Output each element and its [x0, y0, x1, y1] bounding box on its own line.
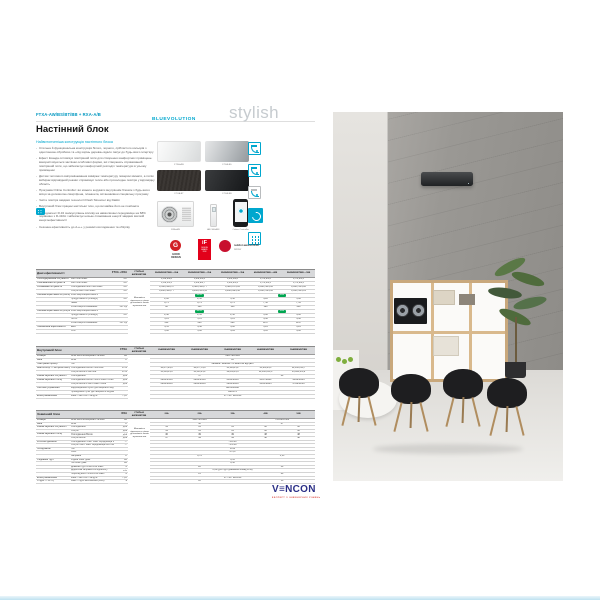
feature-bullet: Ефект Коанда оптимізує повітряний потік …: [36, 157, 155, 173]
spec-s-cell: COP: [70, 330, 114, 334]
vencon-tagline: ЕКСПЕРТ З ІНЖЕНЕРНИХ РІШЕНЬ: [272, 497, 321, 499]
model-header-cell: 35A: [216, 411, 249, 419]
spec-table: Дані ефективностіFTXA + RXAСТИЛЬНІ AW/BS…: [36, 269, 315, 334]
if-award-sublabel: DESIGN AWARD 2018: [198, 247, 211, 253]
table-midnote: Можливість підключення тільки до зовнішн…: [129, 297, 150, 307]
spec-value-cell: 4,00: [282, 330, 315, 334]
product-tile: FTXA-BT: [157, 170, 201, 195]
reddot-award-winner-label: winner: [234, 248, 241, 251]
floor-shadow: [373, 444, 523, 454]
feature-list: Стильна й функціональна конструкція біло…: [36, 147, 155, 232]
spec-value-cell: 10: [150, 480, 249, 484]
model-code: FTXA-AW/BS/BT/BB + RXA-A/B: [36, 112, 101, 117]
phone-product-image: [233, 199, 248, 227]
chair: [337, 368, 383, 430]
spec-l-cell: [36, 330, 70, 334]
section-title-cell: Внутрішній блокFTXA: [36, 347, 128, 355]
remote-product-image: [210, 204, 217, 227]
green-fruit: [342, 359, 347, 364]
model-header-cell: 25AW/BS/BT/BB: [183, 347, 216, 355]
series-header-cell: СТИЛЬНІ AW/BS/BT/BB: [128, 347, 150, 355]
chair: [441, 369, 487, 431]
series-header-cell: СТИЛЬНІ AW/BS/BT/BB: [128, 411, 150, 419]
series-header-cell: СТИЛЬНІ AW/BS/BT/BB: [128, 270, 150, 278]
spec-s-cell: Макс. струм запобіжника (MFA): [70, 480, 114, 484]
spec-m-cell: [128, 480, 150, 484]
feature-bullet: Сезонна ефективність до А+++ у режимі ох…: [36, 226, 155, 230]
product-caption: RXA-A/B: [157, 229, 194, 231]
spec-row: ЕлектроживленняФаза / Частота / НапругаГ…: [36, 395, 315, 399]
blackwood-product-image: [157, 170, 201, 191]
green-fruit: [336, 357, 341, 362]
model-header-cell: 50AW/BS/BT/BB: [282, 347, 315, 355]
product-tile: Online Controller: [233, 199, 249, 231]
spec-section: Дані ефективностіFTXA + RXAСТИЛЬНІ AW/BS…: [36, 269, 315, 334]
feature-bullet: Програма Online Controller: ви можете ке…: [36, 189, 155, 197]
product-caption: ARC466A58: [207, 229, 219, 231]
interior-photo: [333, 112, 563, 481]
spec-value-cell: 5,00: [150, 330, 183, 334]
good-design-award-label: GOOD DESIGN: [163, 253, 189, 259]
spec-value-cell: 5,00: [183, 330, 216, 334]
spec-u-cell: А: [114, 480, 128, 484]
spec-row: COP5,005,004,044,124,00: [36, 330, 315, 334]
model-header-cell: 35AW/BS/BT/BB + 35A: [216, 270, 249, 278]
chair: [485, 378, 531, 440]
good-design-award-icon: G: [170, 240, 181, 251]
feature-bullet: Чисте повітря завдяки технології Flash S…: [36, 199, 155, 203]
unit-dimensions-icon: [248, 186, 261, 199]
spec-m-cell: [128, 395, 150, 399]
model-header-cell: 35AW/BS/BT/BB: [216, 347, 249, 355]
stylish-wordmark: stylish: [229, 103, 279, 123]
outdoor-product-image: [157, 201, 194, 227]
spec-s-cell: Фаза / Частота / Напруга: [70, 395, 114, 399]
spec-l-cell: Струм — 50 Гц: [36, 480, 70, 484]
spec-value-cell: 1~ / 50 / 220-240: [150, 395, 315, 399]
section-title-cell: Зовнішній блокRXA: [36, 411, 128, 419]
model-header-cell: 42AW/BS/BT/BB: [249, 347, 282, 355]
silver-product-image: [205, 141, 249, 162]
green-fruit: [348, 357, 353, 362]
model-header-cell: 25AW/BS/BT/BB + 25A: [183, 270, 216, 278]
table-midnote: Можливість підключення тільки до зовнішн…: [129, 428, 150, 438]
model-header-cell: 42B: [249, 411, 282, 419]
online-controller-app-icon: [36, 208, 45, 215]
section-title-cell: Дані ефективностіFTXA + RXA: [36, 270, 128, 278]
feature-bullet: Датчик теплового випромінювання вимірює …: [36, 175, 155, 187]
page-title: Настінний блок: [36, 124, 109, 135]
model-header-cell: 50B: [282, 411, 315, 419]
spec-m-cell: [128, 330, 150, 334]
room-sensor-icon: [248, 164, 261, 177]
product-caption: FTXA-BB: [205, 193, 249, 195]
energy-class-badge: А+++: [195, 294, 205, 297]
boombox-speaker: [394, 298, 427, 324]
storage-box: [433, 290, 455, 305]
spec-value-cell: 4,12: [249, 330, 282, 334]
product-tile: FTXA-AW: [157, 141, 201, 166]
spec-u-cell: [114, 330, 128, 334]
product-row-accessories: RXA-A/BARC466A58Online Controller: [157, 199, 249, 231]
spec-value-cell: 16: [249, 480, 315, 484]
bluevolution-logo: BLUEVOLUTION: [152, 117, 196, 122]
vencon-logo: V≡NCON: [272, 484, 316, 495]
feature-icon-column: [248, 142, 262, 254]
product-caption: FTXA-AW: [157, 164, 201, 166]
energy-class-badge: А++: [278, 294, 287, 297]
model-header-cell: 20AW/BS/BT/BB: [150, 347, 183, 355]
coanda-swirl-icon: [248, 208, 263, 223]
energy-class-badge: А++: [278, 310, 287, 313]
feature-bullet: Холодоагент R-32 знижує рівень впливу на…: [36, 212, 155, 224]
feature-bullet: Стильна й функціональна конструкція біло…: [36, 147, 155, 155]
product-tile: FTXA-BS: [205, 141, 249, 166]
wall-mounted-ac-unit: [421, 172, 473, 186]
product-caption: Online Controller: [233, 229, 249, 231]
model-header-cell: 20A: [150, 411, 183, 419]
if-award-logo: iF: [198, 239, 211, 247]
product-caption: FTXA-BT: [157, 193, 201, 195]
energy-class-badge: А+++: [195, 310, 205, 313]
if-design-award-icon: iF DESIGN AWARD 2018: [198, 239, 211, 260]
black-product-image: [205, 170, 249, 191]
white-product-image: [157, 141, 201, 162]
spec-table: Внутрішній блокFTXAСТИЛЬНІ AW/BS/BT/BB20…: [36, 346, 315, 399]
product-caption: FTXA-BS: [205, 164, 249, 166]
model-header-cell: 42AW/BS/BT/BB + 42B: [249, 270, 282, 278]
reddot-award-label: reddot award 2018: [234, 243, 259, 247]
reddot-award-icon: [219, 240, 231, 252]
model-header-cell: 20AW/BS/BT/BB + 20A: [150, 270, 183, 278]
page-subtitle: Найвитонченіша конструкція настінного бл…: [36, 140, 113, 144]
spec-l-cell: Електроживлення: [36, 395, 70, 399]
product-tile: FTXA-BB: [205, 170, 249, 195]
model-header-cell: 50AW/BS/BT/BB + 50B: [282, 270, 315, 278]
spec-value-cell: 4,04: [216, 330, 249, 334]
bottom-accent-strip: [0, 596, 600, 600]
storage-box: [433, 336, 459, 356]
product-grid: FTXA-AWFTXA-BSFTXA-BTFTXA-BBRXA-A/BARC46…: [157, 141, 249, 231]
storage-box: [459, 294, 475, 305]
room-airflow-icon: [248, 142, 261, 155]
catalog-page: FTXA-AW/BS/BT/BB + RXA-A/B Настінний бло…: [0, 0, 600, 600]
feature-bullet: Внутрішній блок працює настільки тихо, щ…: [36, 205, 155, 209]
spec-u-cell: Гц/В: [114, 395, 128, 399]
spec-table: Зовнішній блокRXAСТИЛЬНІ AW/BS/BT/BB20A2…: [36, 410, 315, 484]
model-header-cell: 25A: [183, 411, 216, 419]
product-tile: RXA-A/B: [157, 201, 194, 231]
spec-section: Зовнішній блокRXAСТИЛЬНІ AW/BS/BT/BB20A2…: [36, 410, 315, 484]
chair: [389, 374, 435, 436]
spec-section: Внутрішній блокFTXAСТИЛЬНІ AW/BS/BT/BB20…: [36, 346, 315, 399]
product-tile: ARC466A58: [207, 204, 219, 231]
spec-row: Струм — 50 ГцМакс. струм запобіжника (MF…: [36, 480, 315, 484]
